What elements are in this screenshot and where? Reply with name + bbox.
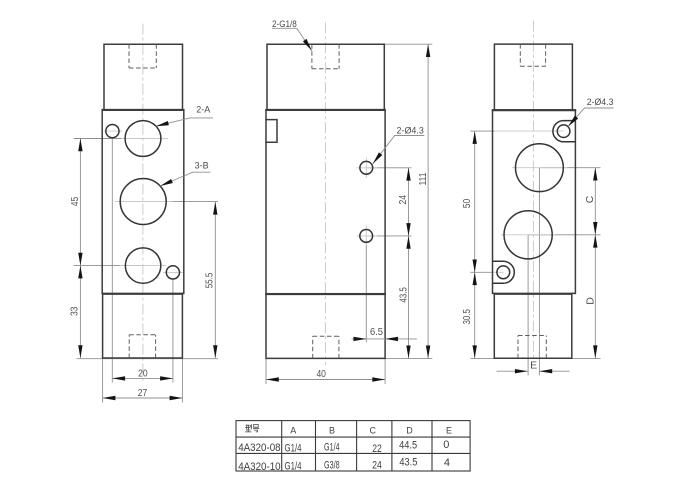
svg-text:G1/4: G1/4	[285, 461, 302, 473]
svg-text:22: 22	[372, 443, 382, 455]
svg-text:30.5: 30.5	[461, 309, 473, 325]
svg-text:43.5: 43.5	[397, 287, 409, 303]
svg-text:50: 50	[461, 199, 473, 209]
svg-text:24: 24	[397, 195, 409, 205]
svg-text:G3/8: G3/8	[324, 460, 340, 472]
svg-text:6.5: 6.5	[370, 326, 383, 338]
svg-text:C: C	[369, 425, 376, 435]
svg-text:43.5: 43.5	[399, 457, 417, 469]
svg-text:0: 0	[443, 439, 449, 451]
svg-text:45: 45	[69, 197, 81, 207]
svg-text:G1/4: G1/4	[324, 442, 340, 454]
svg-text:B: B	[329, 425, 335, 435]
svg-text:E: E	[446, 425, 452, 435]
svg-text:C: C	[584, 195, 596, 203]
svg-text:D: D	[584, 297, 596, 305]
svg-text:27: 27	[138, 387, 148, 399]
svg-text:G1/4: G1/4	[285, 442, 302, 454]
svg-text:D: D	[406, 425, 413, 435]
svg-text:20: 20	[138, 367, 148, 379]
svg-text:2-Ø4.3: 2-Ø4.3	[587, 97, 614, 107]
svg-text:3-B: 3-B	[195, 161, 209, 171]
svg-text:2-Ø4.3: 2-Ø4.3	[397, 126, 424, 136]
svg-text:40: 40	[316, 368, 326, 380]
svg-text:24: 24	[372, 459, 382, 471]
svg-text:33: 33	[69, 306, 81, 316]
svg-text:2-A: 2-A	[196, 105, 210, 115]
svg-text:111: 111	[417, 172, 429, 185]
svg-text:4: 4	[444, 457, 450, 469]
svg-text:4A320-08: 4A320-08	[238, 442, 280, 454]
svg-text:55.5: 55.5	[204, 273, 216, 289]
svg-text:4A320-10: 4A320-10	[238, 461, 280, 473]
svg-text:E: E	[530, 360, 537, 372]
svg-text:2-G1/8: 2-G1/8	[272, 19, 297, 29]
svg-text:A: A	[290, 425, 296, 435]
svg-text:44.5: 44.5	[399, 439, 417, 451]
